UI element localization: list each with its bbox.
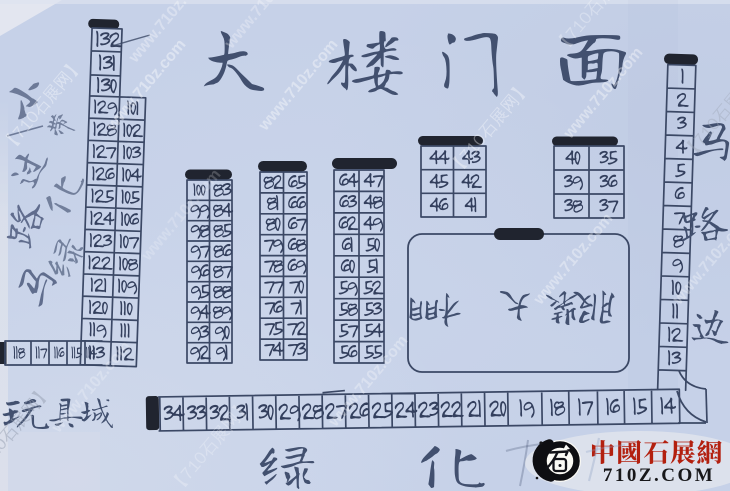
svg-text:710Z.COM: 710Z.COM — [603, 465, 715, 486]
